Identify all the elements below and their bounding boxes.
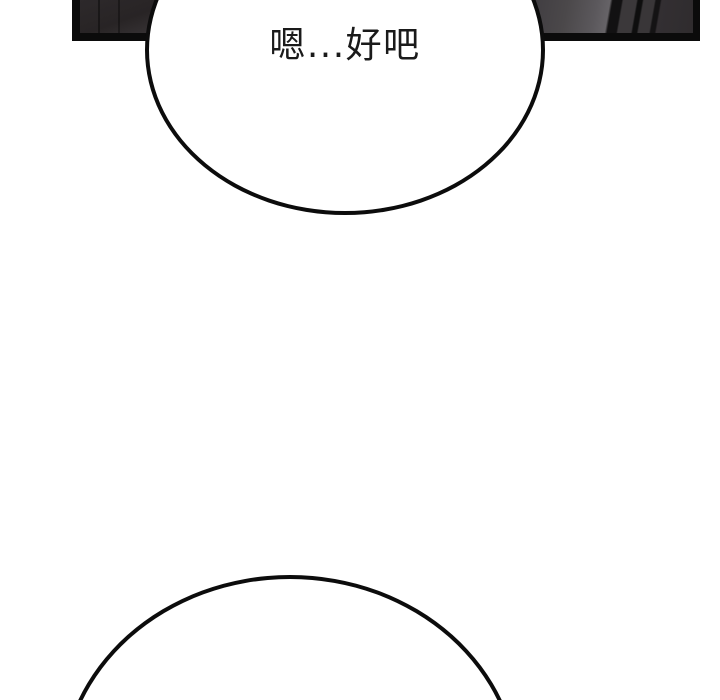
speech-bubble-bottom: [60, 575, 520, 700]
speech-bubble-top: 嗯...好吧: [145, 0, 545, 215]
panel-artwork-right-figure: [535, 0, 693, 33]
speech-bubble-text: 嗯...好吧: [269, 28, 420, 72]
comic-page: 嗯...好吧: [0, 0, 720, 700]
